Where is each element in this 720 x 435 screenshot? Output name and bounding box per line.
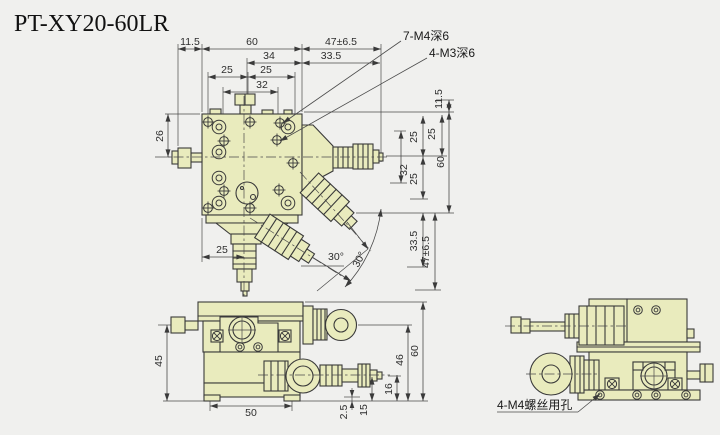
dim-top-25-right: 25 [260, 64, 272, 76]
dim-top-25-bottom: 25 [216, 244, 228, 256]
front-top-micrometer [303, 306, 357, 344]
top-edge-boss [262, 110, 273, 114]
dim-top-26: 26 [154, 130, 166, 142]
x-axis-micrometer [333, 144, 383, 169]
dim-top-34: 34 [263, 50, 275, 62]
drawing-canvas: PT-XY20-60LR [0, 0, 720, 435]
side-view: 4-M4螺丝用孔 [497, 299, 713, 412]
front-foot [204, 395, 220, 401]
side-upper-micrometer [511, 306, 624, 345]
dim-top-25-va: 25 [408, 131, 420, 143]
dim-top-25-left: 25 [221, 64, 233, 76]
annotation-m4-clearance: 4-M4螺丝用孔 [497, 398, 572, 412]
front-lower-micrometer [264, 359, 382, 393]
side-right-knob [687, 364, 713, 382]
dim-top-offset-v: 11.5 [433, 89, 445, 109]
annotation-m3-tapped: 4-M3深6 [429, 46, 475, 60]
hole-callouts: 7-M4深6 4-M3深6 [280, 29, 475, 141]
dim-top-25-vb: 25 [426, 128, 438, 140]
top-view: 30° 30° 11.5 60 47±6.5 34 [154, 29, 475, 296]
dim-front-60: 60 [409, 345, 421, 357]
dim-front-15: 15 [358, 404, 370, 416]
dim-front-46: 46 [394, 354, 406, 366]
left-lock-knob [172, 148, 202, 168]
top-clamp-knob [235, 94, 255, 114]
dim-top-33-5-h: 33.5 [321, 50, 342, 62]
dim-top-travel-v: 47±6.5 [420, 236, 432, 268]
front-foot [284, 395, 300, 401]
drawing-title: PT-XY20-60LR [14, 11, 169, 37]
dim-top-body-height: 60 [435, 156, 447, 168]
dim-front-45: 45 [153, 355, 165, 367]
dim-angle-2: 30° [350, 250, 368, 270]
technical-drawing: PT-XY20-60LR [0, 0, 720, 435]
dim-top-25-vc: 25 [408, 173, 420, 185]
dim-top-offset-h: 11.5 [180, 36, 200, 48]
dim-top-33-5-v: 33.5 [408, 231, 420, 252]
dim-front-2-5: 2.5 [338, 405, 350, 420]
dim-top-body-width: 60 [246, 36, 258, 48]
dim-top-32-h: 32 [256, 79, 268, 91]
annotation-m4-tapped: 7-M4深6 [403, 29, 449, 43]
top-edge-boss [284, 110, 292, 114]
side-view-part [505, 299, 713, 400]
dim-front-16: 16 [383, 383, 395, 395]
front-left-knob [171, 317, 198, 333]
dim-front-50: 50 [245, 407, 257, 419]
front-view-part [171, 302, 390, 401]
y-axis-micrometer [233, 244, 256, 296]
dim-top-travel-h: 47±6.5 [325, 36, 357, 48]
top-edge-boss [210, 109, 221, 114]
dim-angle-1: 30° [328, 251, 344, 263]
front-view: 45 50 2.5 15 16 46 60 [153, 302, 428, 419]
